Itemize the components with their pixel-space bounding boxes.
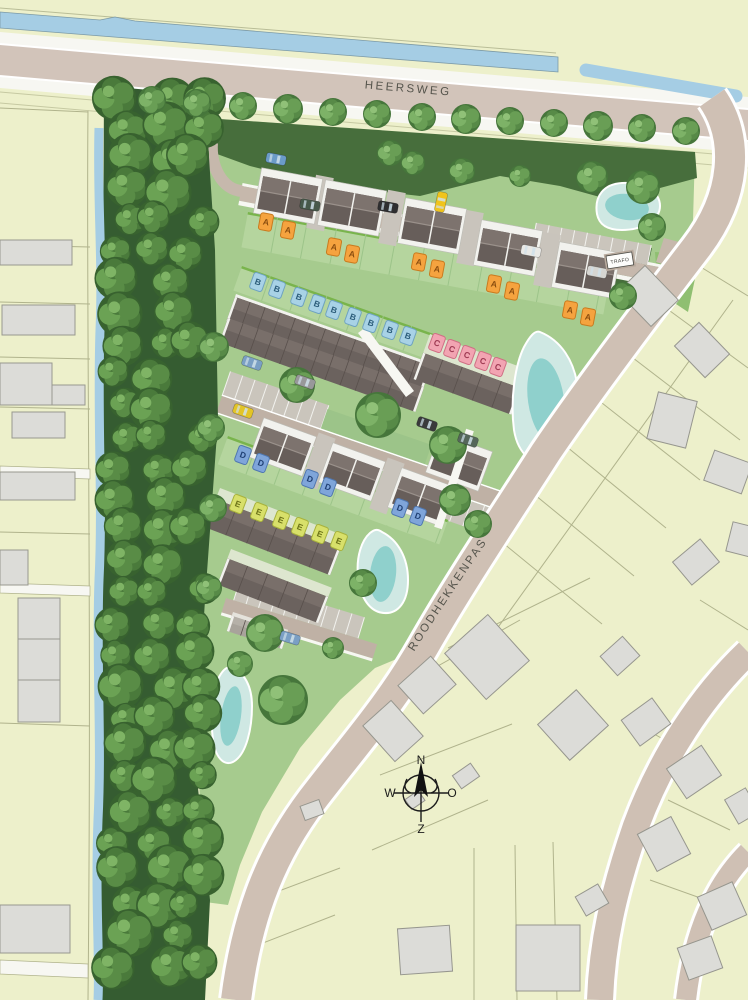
circle-shape <box>591 166 606 181</box>
circle-shape <box>204 420 211 427</box>
circle-shape <box>112 335 123 346</box>
circle-shape <box>118 710 127 719</box>
circle-shape <box>114 240 129 255</box>
tree <box>169 890 198 919</box>
circle-shape <box>153 518 164 529</box>
circle-shape <box>111 457 128 474</box>
circle-shape <box>103 615 112 624</box>
circle-shape <box>514 170 520 176</box>
tree <box>196 575 222 601</box>
tree <box>96 846 138 888</box>
tree <box>576 161 608 193</box>
circle-shape <box>176 896 183 903</box>
circle-shape <box>150 643 168 661</box>
circle-shape <box>192 734 212 754</box>
existing-building <box>397 925 452 975</box>
tree <box>583 111 613 141</box>
circle-shape <box>160 954 171 965</box>
circle-shape <box>177 143 188 154</box>
circle-shape <box>206 339 214 347</box>
tree <box>227 651 253 677</box>
circle-shape <box>150 581 165 596</box>
circle-shape <box>590 118 598 126</box>
tree <box>188 206 219 237</box>
circle-shape <box>158 334 166 342</box>
house-type-marker-a: A <box>429 259 445 278</box>
circle-shape <box>145 92 152 99</box>
circle-shape <box>105 266 116 277</box>
circle-shape <box>142 646 152 656</box>
circle-shape <box>113 486 132 505</box>
circle-shape <box>161 272 171 282</box>
circle-shape <box>201 824 221 844</box>
tree <box>509 165 531 187</box>
tree <box>106 166 148 208</box>
circle-shape <box>164 483 183 502</box>
circle-shape <box>128 797 149 818</box>
tree <box>451 104 481 134</box>
circle-shape <box>150 364 170 384</box>
circle-shape <box>197 799 212 814</box>
tree <box>109 576 140 607</box>
house-type-marker-a: A <box>344 244 360 263</box>
circle-shape <box>117 119 127 129</box>
circle-shape <box>407 156 413 162</box>
circle-shape <box>108 243 116 251</box>
circle-shape <box>117 394 125 402</box>
circle-shape <box>128 140 150 162</box>
circle-shape <box>412 155 424 167</box>
circle-shape <box>465 108 479 122</box>
circle-shape <box>164 676 175 687</box>
tree <box>106 540 144 578</box>
circle-shape <box>199 673 217 691</box>
circle-shape <box>184 242 200 258</box>
circle-shape <box>128 916 151 939</box>
circle-shape <box>471 516 478 523</box>
tree <box>429 426 467 464</box>
circle-shape <box>157 458 173 474</box>
circle-shape <box>201 700 220 719</box>
circle-shape <box>153 701 173 721</box>
circle-shape <box>458 111 466 119</box>
tree <box>246 614 284 652</box>
circle-shape <box>121 332 140 351</box>
tree <box>197 414 225 442</box>
circle-shape <box>236 98 243 105</box>
circle-shape <box>196 93 209 106</box>
tree <box>136 420 167 451</box>
tree <box>229 92 257 120</box>
circle-shape <box>164 108 186 130</box>
circle-shape <box>119 143 131 155</box>
circle-shape <box>166 176 188 198</box>
circle-shape <box>584 168 592 176</box>
circle-shape <box>116 175 127 186</box>
tree <box>628 114 656 142</box>
tree <box>182 854 224 896</box>
circle-shape <box>147 893 159 905</box>
tree <box>540 109 568 137</box>
house-type-marker-a: A <box>580 307 596 326</box>
tree <box>638 213 666 241</box>
circle-shape <box>180 330 190 340</box>
tree <box>183 89 211 117</box>
circle-shape <box>210 418 223 431</box>
circle-shape <box>184 616 193 625</box>
circle-shape <box>202 114 221 133</box>
tree <box>377 140 403 166</box>
circle-shape <box>553 113 566 126</box>
circle-shape <box>201 860 221 880</box>
circle-shape <box>180 457 190 467</box>
circle-shape <box>202 581 209 588</box>
tree <box>363 100 391 128</box>
circle-shape <box>651 217 664 230</box>
circle-shape <box>119 429 127 437</box>
house-type-marker-a: A <box>411 252 427 271</box>
circle-shape <box>159 738 170 749</box>
compass-north-label: N <box>417 753 426 767</box>
circle-shape <box>172 297 191 316</box>
circle-shape <box>281 682 305 706</box>
circle-shape <box>104 459 113 468</box>
house-type-marker-a: A <box>486 274 502 293</box>
circle-shape <box>123 545 141 563</box>
circle-shape <box>641 175 657 191</box>
house-type-marker-a: A <box>280 220 296 239</box>
tree <box>135 232 169 266</box>
circle-shape <box>177 924 192 939</box>
tree <box>91 946 135 990</box>
circle-shape <box>150 424 165 439</box>
circle-shape <box>421 107 434 120</box>
circle-shape <box>255 622 265 632</box>
circle-shape <box>356 575 363 582</box>
house-type-marker-a: A <box>504 281 520 300</box>
circle-shape <box>188 455 206 473</box>
tree <box>136 576 166 606</box>
circle-shape <box>213 336 227 350</box>
tree <box>98 356 129 387</box>
tree <box>496 107 524 135</box>
circle-shape <box>186 140 207 161</box>
tree <box>175 632 215 672</box>
tree <box>104 722 147 765</box>
tree <box>672 117 700 145</box>
circle-shape <box>509 111 522 124</box>
circle-shape <box>118 298 140 320</box>
circle-shape <box>195 767 202 774</box>
tree <box>273 94 303 124</box>
house-type-marker-a: A <box>258 212 274 231</box>
circle-shape <box>152 553 163 564</box>
circle-shape <box>190 801 198 809</box>
circle-shape <box>192 827 203 838</box>
tree <box>189 761 217 789</box>
circle-shape <box>389 144 401 156</box>
circle-shape <box>547 115 554 122</box>
circle-shape <box>140 397 151 408</box>
circle-shape <box>115 644 130 659</box>
circle-shape <box>123 728 143 748</box>
circle-shape <box>143 427 151 435</box>
circle-shape <box>108 646 116 654</box>
circle-shape <box>461 162 473 174</box>
circle-shape <box>192 863 203 874</box>
circle-shape <box>622 286 635 299</box>
circle-shape <box>144 704 155 715</box>
circle-shape <box>123 580 138 595</box>
circle-shape <box>141 367 152 378</box>
compass-east-label: O <box>447 786 456 800</box>
circle-shape <box>109 673 121 685</box>
tree <box>184 694 223 733</box>
circle-shape <box>117 767 125 775</box>
circle-shape <box>242 96 255 109</box>
tree <box>182 818 224 860</box>
circle-shape <box>156 486 166 496</box>
circle-shape <box>519 168 530 179</box>
tree <box>609 282 637 310</box>
circle-shape <box>383 146 390 153</box>
circle-shape <box>263 620 281 638</box>
circle-shape <box>103 86 115 98</box>
circle-shape <box>185 640 195 650</box>
circle-shape <box>118 670 140 692</box>
circle-shape <box>111 612 128 629</box>
circle-shape <box>212 498 225 511</box>
circle-shape <box>645 219 652 226</box>
tree <box>401 151 425 175</box>
circle-shape <box>123 210 131 218</box>
circle-shape <box>114 263 135 284</box>
circle-shape <box>362 573 375 586</box>
site-plan-svg: HEERSWEG <box>0 0 748 1000</box>
circle-shape <box>143 239 152 248</box>
circle-shape <box>115 548 125 558</box>
circle-shape <box>125 172 145 192</box>
tree <box>355 392 401 438</box>
circle-shape <box>198 949 215 966</box>
circle-shape <box>634 177 643 186</box>
tree <box>439 484 471 516</box>
circle-shape <box>178 516 188 526</box>
circle-shape <box>366 402 378 414</box>
tree <box>319 98 347 126</box>
circle-shape <box>152 205 168 221</box>
circle-shape <box>201 765 215 779</box>
circle-shape <box>190 952 199 961</box>
circle-shape <box>108 301 120 313</box>
circle-shape <box>685 121 698 134</box>
circle-shape <box>191 676 201 686</box>
circle-shape <box>170 926 178 934</box>
circle-shape <box>145 208 154 217</box>
circle-shape <box>102 955 113 966</box>
compass-south-label: Z <box>417 822 424 836</box>
compass-west-label: W <box>384 786 396 800</box>
tree <box>137 200 170 233</box>
circle-shape <box>118 920 130 932</box>
circle-shape <box>112 360 127 375</box>
circle-shape <box>503 113 510 120</box>
house-type-marker-a: A <box>562 300 578 319</box>
site-plan-map: HEERSWEG <box>0 0 748 1000</box>
circle-shape <box>182 894 196 908</box>
tree <box>155 797 185 827</box>
circle-shape <box>635 120 642 127</box>
circle-shape <box>202 211 217 226</box>
circle-shape <box>151 90 164 103</box>
tree <box>464 510 492 538</box>
circle-shape <box>184 737 195 748</box>
circle-shape <box>119 800 130 811</box>
circle-shape <box>438 434 448 444</box>
circle-shape <box>370 106 377 113</box>
tree <box>142 606 176 640</box>
circle-shape <box>287 98 301 112</box>
circle-shape <box>116 583 124 591</box>
existing-building <box>516 925 580 991</box>
circle-shape <box>280 101 288 109</box>
tree <box>322 637 344 659</box>
circle-shape <box>326 104 333 111</box>
circle-shape <box>104 834 112 842</box>
circle-shape <box>113 515 123 525</box>
circle-shape <box>196 213 204 221</box>
circle-shape <box>164 300 174 310</box>
circle-shape <box>156 179 168 191</box>
circle-shape <box>112 82 133 103</box>
circle-shape <box>641 118 654 131</box>
circle-shape <box>616 288 623 295</box>
tree <box>626 170 660 204</box>
circle-shape <box>193 637 212 656</box>
tree <box>449 158 475 184</box>
circle-shape <box>149 394 170 415</box>
tree <box>199 332 229 362</box>
circle-shape <box>150 614 159 623</box>
circle-shape <box>190 95 197 102</box>
circle-shape <box>104 489 114 499</box>
tree <box>408 103 436 131</box>
circle-shape <box>126 116 145 135</box>
circle-shape <box>105 363 113 371</box>
tree <box>258 675 308 725</box>
circle-shape <box>191 614 208 631</box>
circle-shape <box>169 802 184 817</box>
tree <box>138 86 166 114</box>
circle-shape <box>327 642 333 648</box>
circle-shape <box>121 513 139 531</box>
circle-shape <box>239 655 251 667</box>
circle-shape <box>376 104 389 117</box>
circle-shape <box>169 269 187 287</box>
circle-shape <box>415 109 422 116</box>
circle-shape <box>597 115 611 129</box>
circle-shape <box>454 489 469 504</box>
circle-shape <box>447 491 455 499</box>
circle-shape <box>152 763 174 785</box>
circle-shape <box>163 804 171 812</box>
house-type-marker-a: A <box>326 237 342 256</box>
circle-shape <box>144 583 152 591</box>
circle-shape <box>150 461 158 469</box>
circle-shape <box>142 767 154 779</box>
circle-shape <box>157 611 173 627</box>
tree <box>199 494 227 522</box>
circle-shape <box>332 640 343 651</box>
circle-shape <box>193 702 203 712</box>
circle-shape <box>206 500 213 507</box>
circle-shape <box>120 893 129 902</box>
circle-shape <box>107 855 118 866</box>
circle-shape <box>270 686 283 699</box>
circle-shape <box>114 731 125 742</box>
circle-shape <box>161 550 181 570</box>
circle-shape <box>376 399 398 421</box>
tree <box>349 569 377 597</box>
circle-shape <box>194 117 204 127</box>
tree <box>98 663 144 709</box>
circle-shape <box>208 579 220 591</box>
circle-shape <box>332 102 345 115</box>
circle-shape <box>111 832 127 848</box>
circle-shape <box>455 164 462 171</box>
circle-shape <box>477 514 490 527</box>
circle-shape <box>111 952 132 973</box>
circle-shape <box>145 834 154 843</box>
tree <box>182 944 218 980</box>
circle-shape <box>177 244 186 253</box>
circle-shape <box>679 123 686 130</box>
tree <box>94 607 130 643</box>
circle-shape <box>158 854 170 866</box>
circle-shape <box>150 237 166 253</box>
circle-shape <box>233 657 240 664</box>
circle-shape <box>115 852 135 872</box>
